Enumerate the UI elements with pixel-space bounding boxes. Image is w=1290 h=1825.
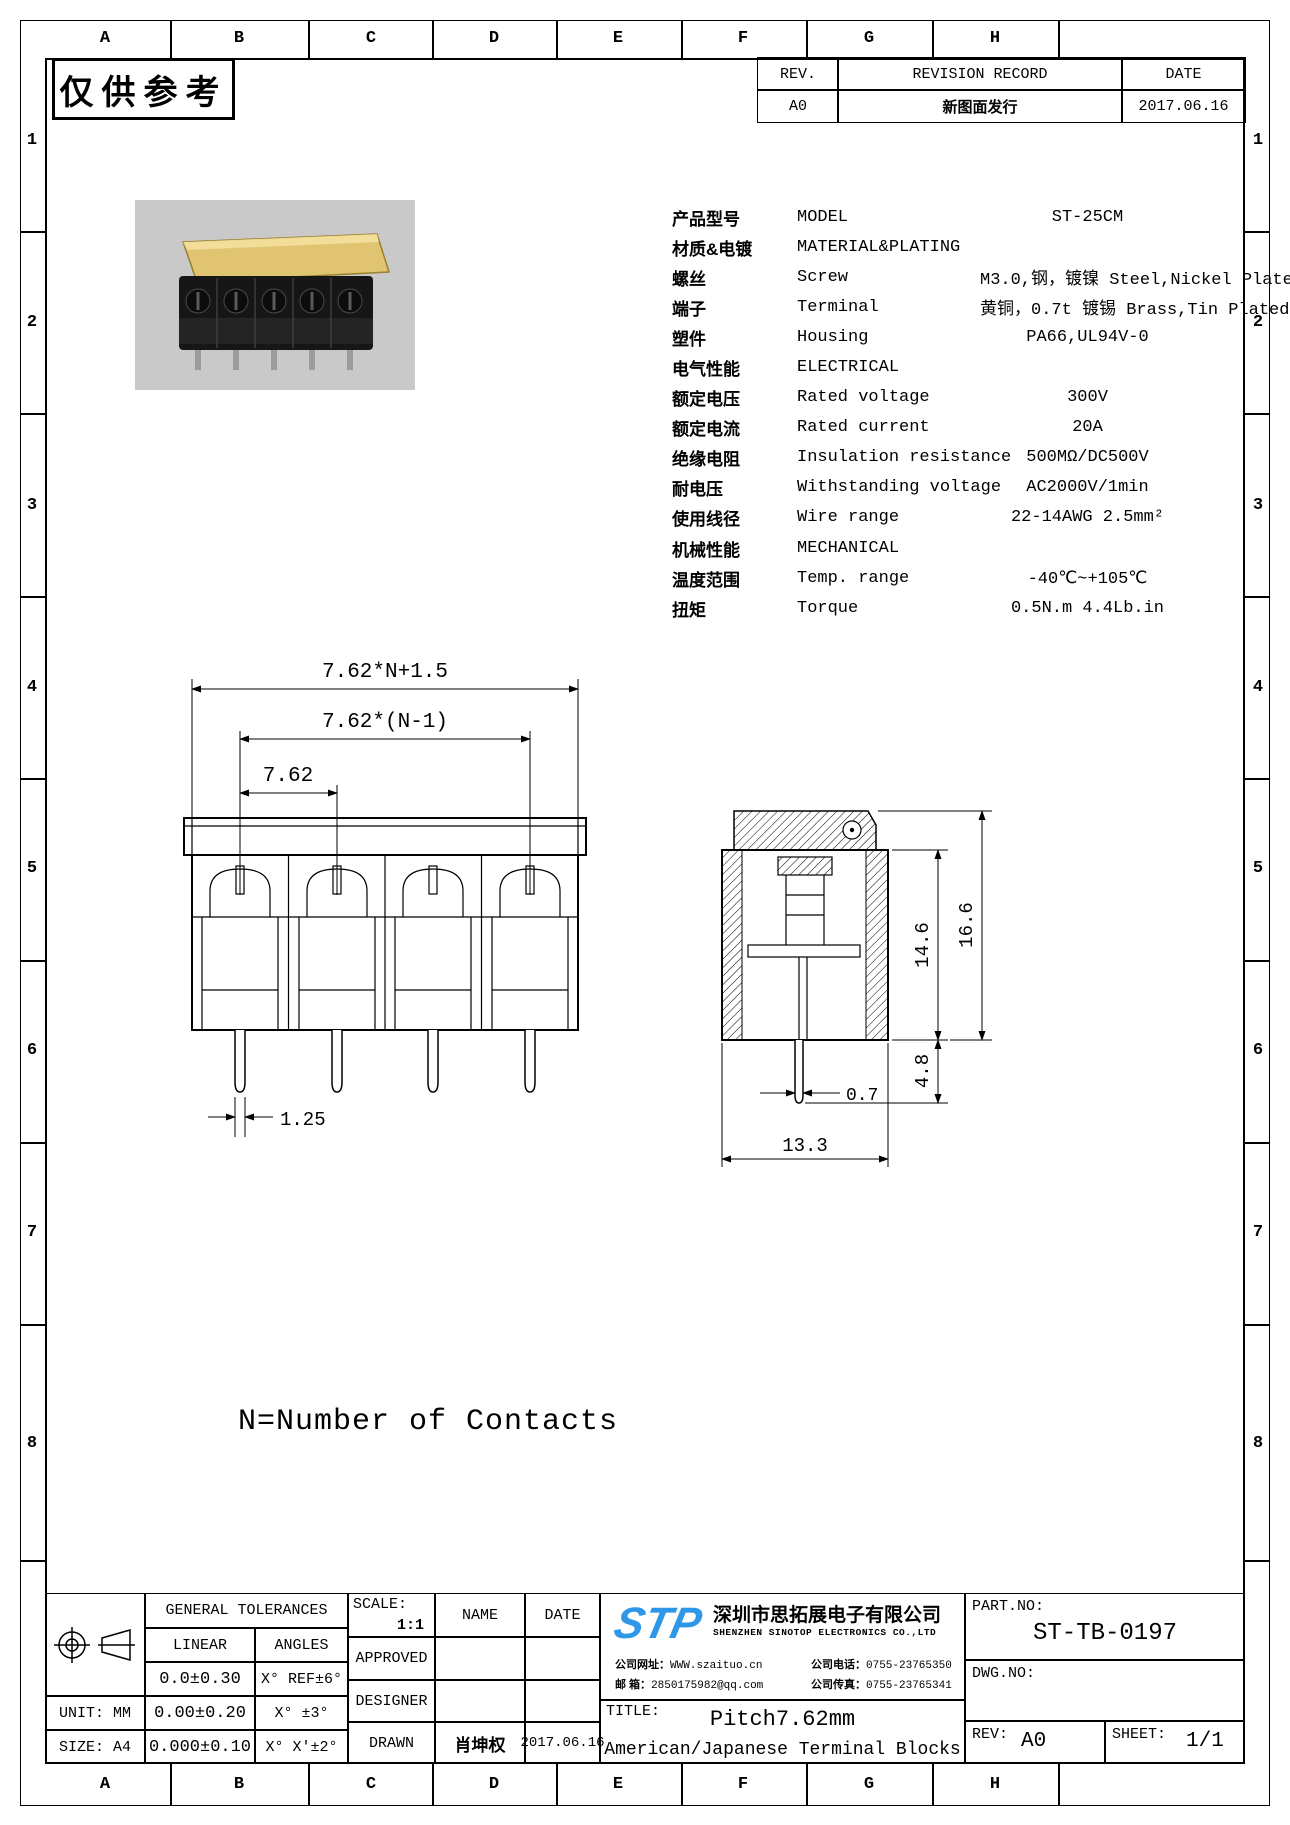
grid-col-label: A — [92, 26, 118, 52]
grid-tick — [681, 1764, 683, 1805]
tolerance-linear-2: 0.00±0.20 — [145, 1696, 255, 1730]
grid-tick — [20, 1142, 45, 1144]
grid-row-label: 5 — [19, 856, 45, 882]
spec-label-cn: 温度范围 — [672, 566, 797, 591]
designer-cell: DESIGNER — [348, 1680, 435, 1722]
spec-value: 黄铜，0.7t 镀锡 Brass,Tin Plated — [980, 294, 1195, 320]
grid-col-label: F — [730, 1772, 756, 1798]
grid-row-label: 7 — [19, 1220, 45, 1246]
grid-col-label: C — [358, 26, 384, 52]
grid-tick — [1245, 413, 1270, 415]
grid-col-label: D — [481, 26, 507, 52]
tolerance-angle-3: X° X'±2° — [255, 1730, 348, 1764]
cover-screw-center — [850, 828, 854, 832]
spec-list: 产品型号MODELST-25CM 材质&电镀MATERIAL&PLATING 螺… — [672, 202, 1212, 623]
spec-label-cn: 机械性能 — [672, 536, 797, 561]
title-block: UNIT: MM SIZE: A4 GENERAL TOLERANCES LIN… — [45, 1593, 1245, 1764]
spec-label-en: Terminal — [797, 298, 980, 317]
grid-row-label: 1 — [19, 128, 45, 154]
spec-row: 扭矩Torque0.5N.m 4.4Lb.in — [672, 593, 1212, 623]
spec-label-cn: 使用线径 — [672, 505, 797, 530]
scale-cell: SCALE: 1:1 — [348, 1593, 435, 1637]
rev-label: REV: — [972, 1726, 1008, 1743]
company-cell: STP 深圳市思拓展电子有限公司 SHENZHEN SINOTOP ELECTR… — [600, 1593, 965, 1700]
grid-col-label: E — [605, 26, 631, 52]
dwg-no-label: DWG.NO: — [972, 1665, 1035, 1682]
spec-row: 电气性能ELECTRICAL — [672, 352, 1212, 382]
dim-outer-screw-span: 7.62*(N-1) — [322, 711, 448, 734]
spec-label-en: Housing — [797, 328, 980, 347]
grid-tick — [20, 596, 45, 598]
grid-row-label: 5 — [1245, 856, 1271, 882]
revision-date-value: 2017.06.16 — [1121, 89, 1246, 123]
part-no-value: ST-TB-0197 — [966, 1620, 1244, 1647]
grid-tick — [932, 20, 934, 58]
spec-value: 0.5N.m 4.4Lb.in — [980, 599, 1195, 618]
designer-date-cell — [525, 1680, 600, 1722]
company-name-cn: 深圳市思拓展电子有限公司 — [713, 1600, 941, 1627]
spec-row: 温度范围Temp. range-40℃~+105℃ — [672, 563, 1212, 593]
approved-name-cell — [435, 1637, 525, 1680]
grid-tick — [20, 413, 45, 415]
spec-label-cn: 产品型号 — [672, 205, 797, 230]
spec-label-en: MATERIAL&PLATING — [797, 238, 980, 257]
dim-pitch: 7.62 — [263, 765, 313, 788]
reference-only-stamp: 仅供参考 — [52, 58, 235, 120]
rev-value: A0 — [1021, 1730, 1046, 1753]
grid-row-label: 6 — [19, 1038, 45, 1064]
spec-label-en: Wire range — [797, 508, 980, 527]
spec-label-en: Insulation resistance — [797, 448, 980, 467]
grid-tick — [20, 1324, 45, 1326]
grid-tick — [806, 1764, 808, 1805]
company-fax: 公司传真：0755-23765341 — [811, 1676, 952, 1692]
general-tolerances-header: GENERAL TOLERANCES — [145, 1593, 348, 1628]
grid-col-label: H — [982, 26, 1008, 52]
approved-date-cell — [525, 1637, 600, 1680]
grid-tick — [932, 1764, 934, 1805]
pin-section — [795, 1040, 803, 1103]
spec-row: 产品型号MODELST-25CM — [672, 202, 1212, 232]
third-angle-projection-icon — [52, 1624, 138, 1666]
spec-label-en: MODEL — [797, 208, 980, 227]
spec-label-en: Screw — [797, 268, 980, 287]
drawing-title-line1: Pitch7.62mm — [601, 1707, 964, 1732]
spec-value: M3.0,钢，镀镍 Steel,Nickel Plated — [980, 264, 1195, 290]
grid-tick — [556, 1764, 558, 1805]
scale-label: SCALE: — [353, 1596, 407, 1613]
grid-tick — [1245, 1324, 1270, 1326]
spec-label-en: Rated voltage — [797, 388, 980, 407]
grid-col-label: E — [605, 1772, 631, 1798]
drawn-name: 肖坤权 — [435, 1722, 525, 1764]
email-label: 邮 箱： — [615, 1679, 651, 1691]
grid-col-label: C — [358, 1772, 384, 1798]
spec-value: 500MΩ/DC500V — [980, 448, 1195, 467]
dim-pin-length: 4.8 — [912, 1054, 934, 1088]
grid-tick — [432, 1764, 434, 1805]
spec-row: 机械性能MECHANICAL — [672, 533, 1212, 563]
side-view-drawing: 14.6 16.6 4.8 0.7 13.3 — [700, 795, 1020, 1195]
spec-label-en: Withstanding voltage — [797, 478, 980, 497]
company-logo: STP — [610, 1602, 705, 1646]
spec-row: 额定电流Rated current20A — [672, 413, 1212, 443]
grid-tick — [1245, 1142, 1270, 1144]
website-value: WWW.szaituo.cn — [670, 1660, 762, 1672]
grid-row-label: 3 — [1245, 493, 1271, 519]
sheet-value: 1/1 — [1186, 1730, 1224, 1753]
dim-pin-thickness: 0.7 — [846, 1086, 878, 1106]
unit-cell: UNIT: MM — [45, 1696, 145, 1730]
grid-tick — [20, 231, 45, 233]
spec-row: 材质&电镀MATERIAL&PLATING — [672, 232, 1212, 262]
angles-header: ANGLES — [255, 1628, 348, 1662]
tolerance-linear-1: 0.0±0.30 — [145, 1662, 255, 1696]
spec-label-en: MECHANICAL — [797, 539, 980, 558]
grid-col-label: D — [481, 1772, 507, 1798]
part-no-label: PART.NO: — [972, 1598, 1044, 1615]
spec-label-cn: 材质&电镀 — [672, 235, 797, 260]
spec-label-en: Rated current — [797, 418, 980, 437]
spec-row: 耐电压Withstanding voltageAC2000V/1min — [672, 473, 1212, 503]
projection-symbol-cell — [45, 1593, 145, 1696]
company-website: 公司网址：WWW.szaituo.cn — [615, 1656, 762, 1672]
dwg-no-cell: DWG.NO: — [965, 1660, 1245, 1721]
tolerance-angle-1: X° REF±6° — [255, 1662, 348, 1696]
spec-value: PA66,UL94V-0 — [980, 328, 1195, 347]
body-wall-left — [722, 850, 742, 1040]
dim-total-height: 16.6 — [956, 902, 978, 948]
product-photo — [135, 200, 415, 390]
grid-col-label: F — [730, 26, 756, 52]
sheet-cell: SHEET: 1/1 — [1105, 1721, 1245, 1764]
grid-tick — [681, 20, 683, 58]
rev-cell: REV: A0 — [965, 1721, 1105, 1764]
email-value: 2850175982@qq.com — [651, 1680, 763, 1692]
grid-row-label: 3 — [19, 493, 45, 519]
spec-row: 额定电压Rated voltage300V — [672, 383, 1212, 413]
grid-tick — [170, 20, 172, 58]
approved-cell: APPROVED — [348, 1637, 435, 1680]
company-email: 邮 箱：2850175982@qq.com — [615, 1676, 763, 1692]
spec-value: 300V — [980, 388, 1195, 407]
drawn-cell: DRAWN — [348, 1722, 435, 1764]
grid-col-label: H — [982, 1772, 1008, 1798]
grid-col-label: A — [92, 1772, 118, 1798]
part-no-cell: PART.NO: ST-TB-0197 — [965, 1593, 1245, 1660]
grid-row-label: 4 — [19, 675, 45, 701]
spec-row: 绝缘电阻Insulation resistance500MΩ/DC500V — [672, 443, 1212, 473]
spec-row: 塑件HousingPA66,UL94V-0 — [672, 322, 1212, 352]
company-name-en: SHENZHEN SINOTOP ELECTRONICS CO.,LTD — [713, 1627, 941, 1638]
grid-tick — [308, 1764, 310, 1805]
grid-row-label: 8 — [1245, 1431, 1271, 1457]
spec-label-cn: 额定电流 — [672, 415, 797, 440]
grid-tick — [308, 20, 310, 58]
drawing-title-line2: American/Japanese Terminal Blocks — [601, 1740, 964, 1760]
spec-value: -40℃~+105℃ — [980, 568, 1195, 589]
company-phone: 公司电话：0755-23765350 — [811, 1656, 952, 1672]
spec-label-cn: 端子 — [672, 295, 797, 320]
spec-label-cn: 耐电压 — [672, 475, 797, 500]
drawing-sheet: A B C D E F G H A B C D E F G H 1 2 3 4 … — [0, 0, 1290, 1825]
revision-rev-header: REV. — [757, 57, 839, 91]
grid-col-label: G — [856, 1772, 882, 1798]
drawn-date: 2017.06.16 — [525, 1722, 600, 1764]
grid-col-label: G — [856, 26, 882, 52]
front-view-drawing: 7.62*N+1.5 7.62*(N-1) 7.62 1.25 — [170, 645, 600, 1165]
spec-label-cn: 螺丝 — [672, 265, 797, 290]
spec-label-cn: 额定电压 — [672, 385, 797, 410]
company-names: 深圳市思拓展电子有限公司 SHENZHEN SINOTOP ELECTRONIC… — [713, 1600, 941, 1638]
spec-value: 20A — [980, 418, 1195, 437]
tolerance-angle-2: X° ±3° — [255, 1696, 348, 1730]
size-cell: SIZE: A4 — [45, 1730, 145, 1764]
spec-label-cn: 扭矩 — [672, 596, 797, 621]
grid-row-label: 2 — [19, 310, 45, 336]
grid-col-label: B — [226, 26, 252, 52]
grid-tick — [806, 20, 808, 58]
spec-row: 螺丝ScrewM3.0,钢，镀镍 Steel,Nickel Plated — [672, 262, 1212, 292]
grid-tick — [1245, 231, 1270, 233]
linear-header: LINEAR — [145, 1628, 255, 1662]
phone-value: 0755-23765350 — [866, 1660, 952, 1672]
fax-value: 0755-23765341 — [866, 1680, 952, 1692]
grid-row-label: 7 — [1245, 1220, 1271, 1246]
spec-label-en: ELECTRICAL — [797, 358, 980, 377]
grid-row-label: 4 — [1245, 675, 1271, 701]
spec-value: ST-25CM — [980, 208, 1195, 227]
grid-tick — [20, 1560, 45, 1562]
grid-col-label: B — [226, 1772, 252, 1798]
grid-tick — [1058, 20, 1060, 58]
revision-rev-value: A0 — [757, 89, 839, 123]
spec-label-en: Torque — [797, 599, 980, 618]
spec-value: 22-14AWG 2.5mm² — [980, 508, 1195, 527]
revision-date-header: DATE — [1121, 57, 1246, 91]
grid-tick — [20, 778, 45, 780]
date-header: DATE — [525, 1593, 600, 1637]
spec-label-en: Temp. range — [797, 569, 980, 588]
sheet-label: SHEET: — [1112, 1726, 1166, 1743]
dim-depth: 13.3 — [782, 1135, 828, 1157]
grid-tick — [1245, 778, 1270, 780]
scale-value: 1:1 — [397, 1617, 424, 1634]
website-label: 公司网址： — [615, 1659, 670, 1671]
name-header: NAME — [435, 1593, 525, 1637]
grid-tick — [1058, 1764, 1060, 1805]
grid-tick — [20, 960, 45, 962]
spec-label-cn: 电气性能 — [672, 355, 797, 380]
dim-body-height: 14.6 — [912, 922, 934, 968]
grid-tick — [556, 20, 558, 58]
revision-table: REV. REVISION RECORD DATE A0 新图面发行 2017.… — [758, 58, 1245, 122]
spec-row: 端子Terminal黄铜，0.7t 镀锡 Brass,Tin Plated — [672, 292, 1212, 322]
spec-label-cn: 绝缘电阻 — [672, 445, 797, 470]
contacts-note: N=Number of Contacts — [238, 1405, 618, 1439]
title-cell: TITLE: Pitch7.62mm American/Japanese Ter… — [600, 1700, 965, 1764]
dim-overall-width: 7.62*N+1.5 — [322, 661, 448, 684]
grid-tick — [170, 1764, 172, 1805]
grid-row-label: 8 — [19, 1431, 45, 1457]
revision-record-header: REVISION RECORD — [837, 57, 1123, 91]
grid-row-label: 1 — [1245, 128, 1271, 154]
tolerance-linear-3: 0.000±0.10 — [145, 1730, 255, 1764]
spec-label-cn: 塑件 — [672, 325, 797, 350]
grid-tick — [1245, 596, 1270, 598]
grid-tick — [1245, 1560, 1270, 1562]
grid-tick — [432, 20, 434, 58]
revision-record-value: 新图面发行 — [837, 89, 1123, 123]
designer-name-cell — [435, 1680, 525, 1722]
fax-label: 公司传真： — [811, 1679, 866, 1691]
body-wall-right — [866, 850, 888, 1040]
spec-row: 使用线径Wire range22-14AWG 2.5mm² — [672, 503, 1212, 533]
grid-tick — [1245, 960, 1270, 962]
dim-pin-width: 1.25 — [280, 1109, 326, 1131]
terminal-base — [179, 318, 373, 344]
phone-label: 公司电话： — [811, 1659, 866, 1671]
grid-row-label: 6 — [1245, 1038, 1271, 1064]
spec-value: AC2000V/1min — [980, 478, 1195, 497]
